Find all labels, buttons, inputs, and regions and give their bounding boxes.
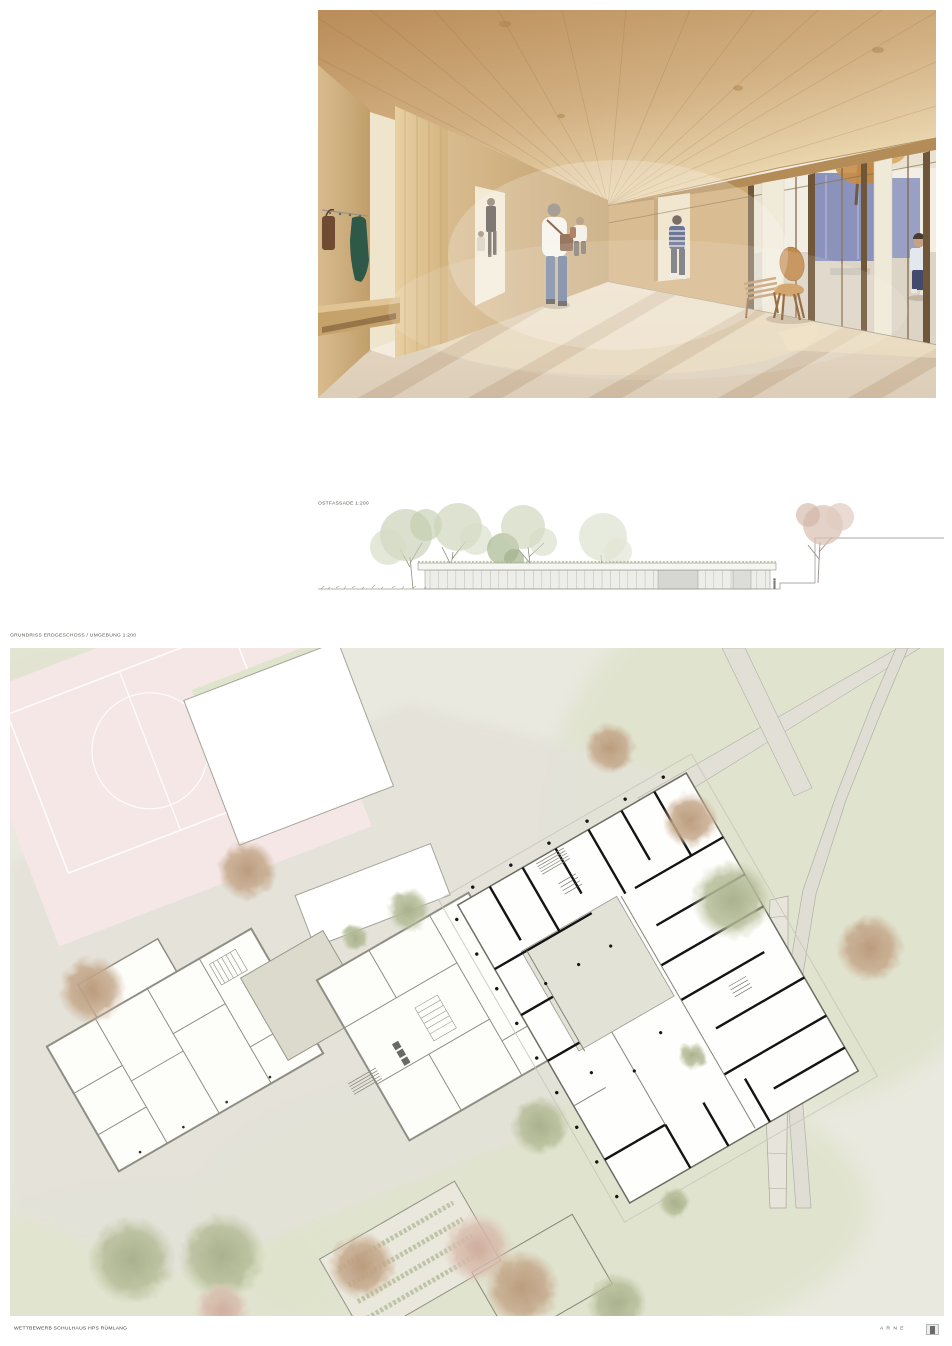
interior-rendering-image xyxy=(318,10,936,398)
elevation-drawing xyxy=(318,497,944,597)
east-facade-elevation xyxy=(318,497,944,597)
ground-floor-site-plan xyxy=(10,648,944,1316)
office-logo xyxy=(926,1324,939,1335)
scale-figure xyxy=(773,578,776,589)
siteplan-label: GRUNDRISS ERDGESCHOSS / UMGEBUNG 1:200 xyxy=(10,633,136,638)
interior-rendering xyxy=(318,10,936,398)
footer-project-title: WETTBEWERB SCHULHAUS HPS RÜMLANG xyxy=(14,1326,127,1331)
elevation-pink-tree xyxy=(796,503,854,583)
office-logo-mark xyxy=(930,1326,935,1334)
site-plan-drawing xyxy=(10,648,944,1316)
presentation-board: OSTFASSADE 1:200 xyxy=(0,0,952,1346)
footer-author-code: A R N E xyxy=(880,1326,905,1331)
elevation-building xyxy=(418,562,776,589)
